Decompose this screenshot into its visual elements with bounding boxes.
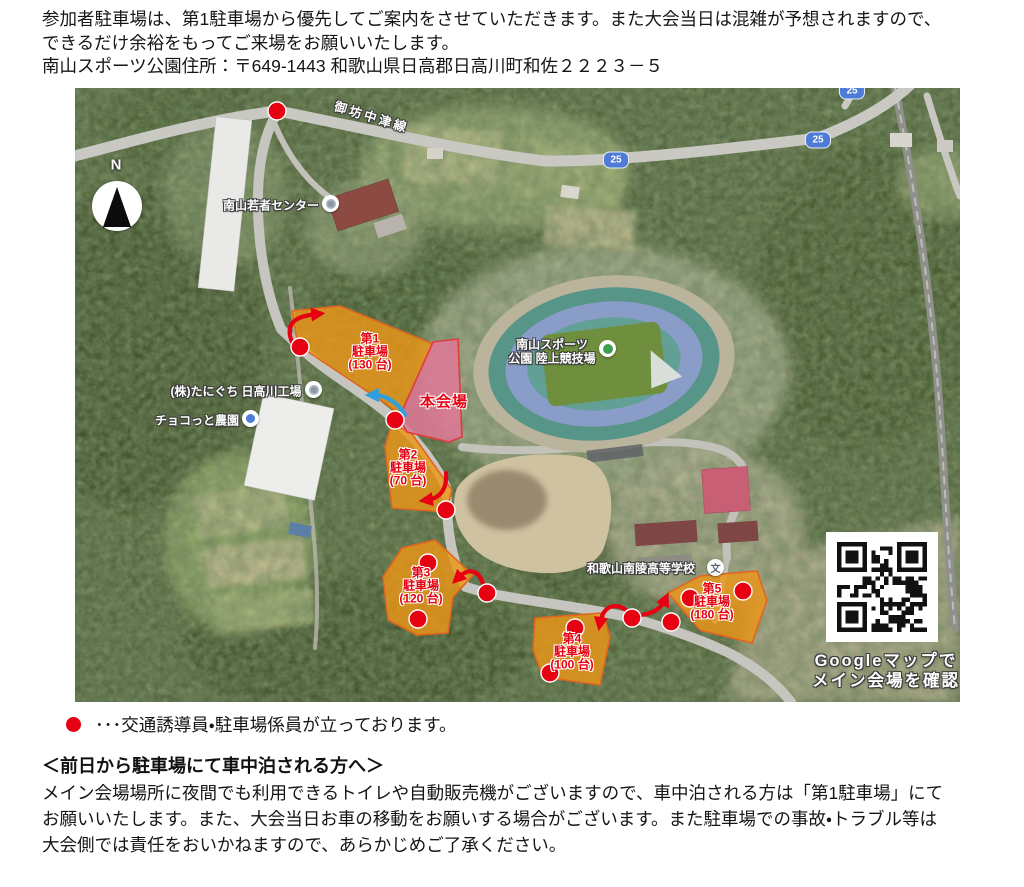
notice-paragraph: メイン会場場所に夜間でも利用できるトイレや自動販売機がございますので、車中泊され…: [42, 780, 943, 858]
parking-2-label: 第2 駐車場 (70 台): [390, 449, 427, 488]
guard-dot: [268, 102, 286, 120]
school-label: 和歌山南陵高等学校: [587, 560, 695, 577]
compass-circle: [92, 181, 142, 231]
route-shield-25: 25: [839, 88, 865, 100]
intro-line-2: できるだけ余裕をもってご来場をお願いいたします。: [42, 32, 941, 56]
parking-1-label: 第1 駐車場 (130 台): [348, 333, 391, 372]
school-gym: [702, 466, 751, 513]
parking-5-label: 第5 駐車場 (180 台): [690, 583, 733, 622]
factory-pin-icon: [305, 381, 322, 398]
legend-red-dot-icon: [66, 717, 81, 732]
route-shield-25: 25: [603, 152, 629, 169]
parking-4-capacity: (100 台): [550, 659, 593, 672]
school-icon-glyph: 文: [711, 560, 721, 575]
legend-row: ･･･交通誘導員・駐車場係員が立っております。: [66, 712, 457, 736]
notice-line-1: メイン会場場所に夜間でも利用できるトイレや自動販売機がございますので、車中泊され…: [42, 780, 943, 806]
guard-dot: [623, 609, 641, 627]
qr-code-box: [826, 532, 938, 642]
legend-text: ･･･交通誘導員・駐車場係員が立っております。: [95, 712, 457, 737]
guard-dot: [291, 338, 309, 356]
farm-pin-icon: [242, 410, 259, 427]
intro-line-3: 南山スポーツ公園住所：〒649-1443 和歌山県日高郡日高川町和佐２２２３－５: [42, 55, 941, 79]
stadium-label-line2: 公園 陸上競技場: [508, 350, 595, 367]
parking-1-capacity: (130 台): [348, 359, 391, 372]
guard-dot: [437, 501, 455, 519]
parking-2-capacity: (70 台): [390, 475, 427, 488]
qr-code: [837, 542, 927, 632]
parking-3-capacity: (120 台): [399, 593, 442, 606]
parking-3-label: 第3 駐車場 (120 台): [399, 567, 442, 606]
parking-4-label: 第4 駐車場 (100 台): [550, 633, 593, 672]
youth-center-label: 南山若者センター: [223, 197, 319, 214]
stadium-pin-icon: [599, 340, 616, 357]
qr-caption-line2: メイン会場を確認: [812, 667, 960, 691]
factory-label: (株)たにぐち 日高川工場: [170, 383, 301, 400]
parking-map: N 25 25 25 御坊中津線 南山若者センター (株)たにぐち 日高川工場 …: [75, 88, 960, 702]
notice-line-3: 大会側では責任をおいかねますので、あらかじめご了承ください。: [42, 832, 943, 858]
route-number: 25: [846, 88, 857, 97]
intro-line-1: 参加者駐車場は、第1駐車場から優先してご案内をさせていただきます。また大会当日は…: [42, 8, 941, 32]
guard-dot: [478, 584, 496, 602]
route-number: 25: [610, 155, 621, 166]
intro-paragraph: 参加者駐車場は、第1駐車場から優先してご案内をさせていただきます。また大会当日は…: [42, 8, 941, 79]
school-pin-icon: 文: [707, 559, 724, 576]
guard-dot: [662, 613, 680, 631]
farm-label: チョコっと農園: [155, 412, 239, 429]
school-building: [634, 520, 697, 546]
notice-heading: ＜前日から駐車場にて車中泊される方へ＞: [42, 752, 384, 778]
guard-dot: [734, 582, 752, 600]
route-number: 25: [812, 135, 823, 146]
guard-dot: [409, 610, 427, 628]
route-shield-25: 25: [805, 132, 831, 149]
guard-dot: [386, 411, 404, 429]
compass-north-label: N: [111, 157, 122, 174]
youth-center-pin-icon: [322, 195, 339, 212]
parking-5-capacity: (180 台): [690, 609, 733, 622]
notice-line-2: お願いいたします。また、大会当日お車の移動をお願いする場合がございます。また駐車…: [42, 806, 943, 832]
main-venue-label: 本会場: [420, 396, 468, 409]
flyer-page: 参加者駐車場は、第1駐車場から優先してご案内をさせていただきます。また大会当日は…: [0, 0, 1024, 887]
